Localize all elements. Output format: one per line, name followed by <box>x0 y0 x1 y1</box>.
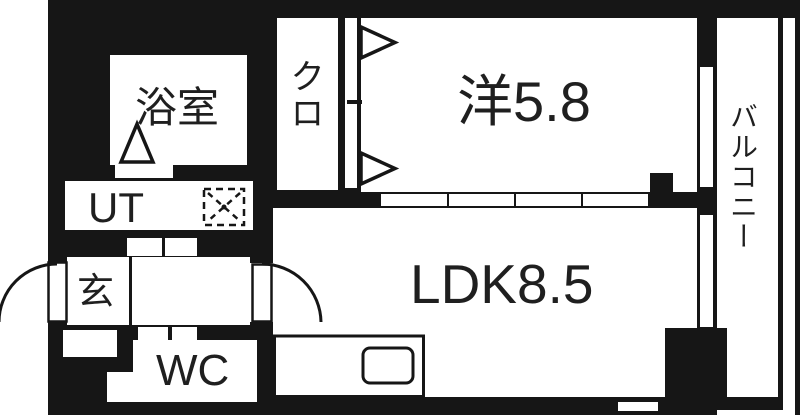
entrance-door-leaf <box>49 263 67 322</box>
ldk-label: LDK8.5 <box>410 257 593 312</box>
western-room-label: 洋5.8 <box>457 74 591 130</box>
floor-plan: 浴室 クロ 洋5.8 バルコニー UT 玄 LDK8.5 WC <box>0 0 800 420</box>
closet-door-icon <box>361 153 395 184</box>
ldk-door-leaf <box>253 265 272 322</box>
bath-label: 浴室 <box>135 87 219 129</box>
closet-label: クロ <box>287 58 322 132</box>
toilet-label: WC <box>156 349 229 393</box>
utility-label: UT <box>88 187 144 229</box>
balcony-label: バルコニー <box>728 102 756 252</box>
closet-door-icon <box>361 27 395 58</box>
entrance-label: 玄 <box>77 273 114 310</box>
kitchen-sink-icon <box>363 348 413 383</box>
washing-machine-icon <box>204 189 244 225</box>
